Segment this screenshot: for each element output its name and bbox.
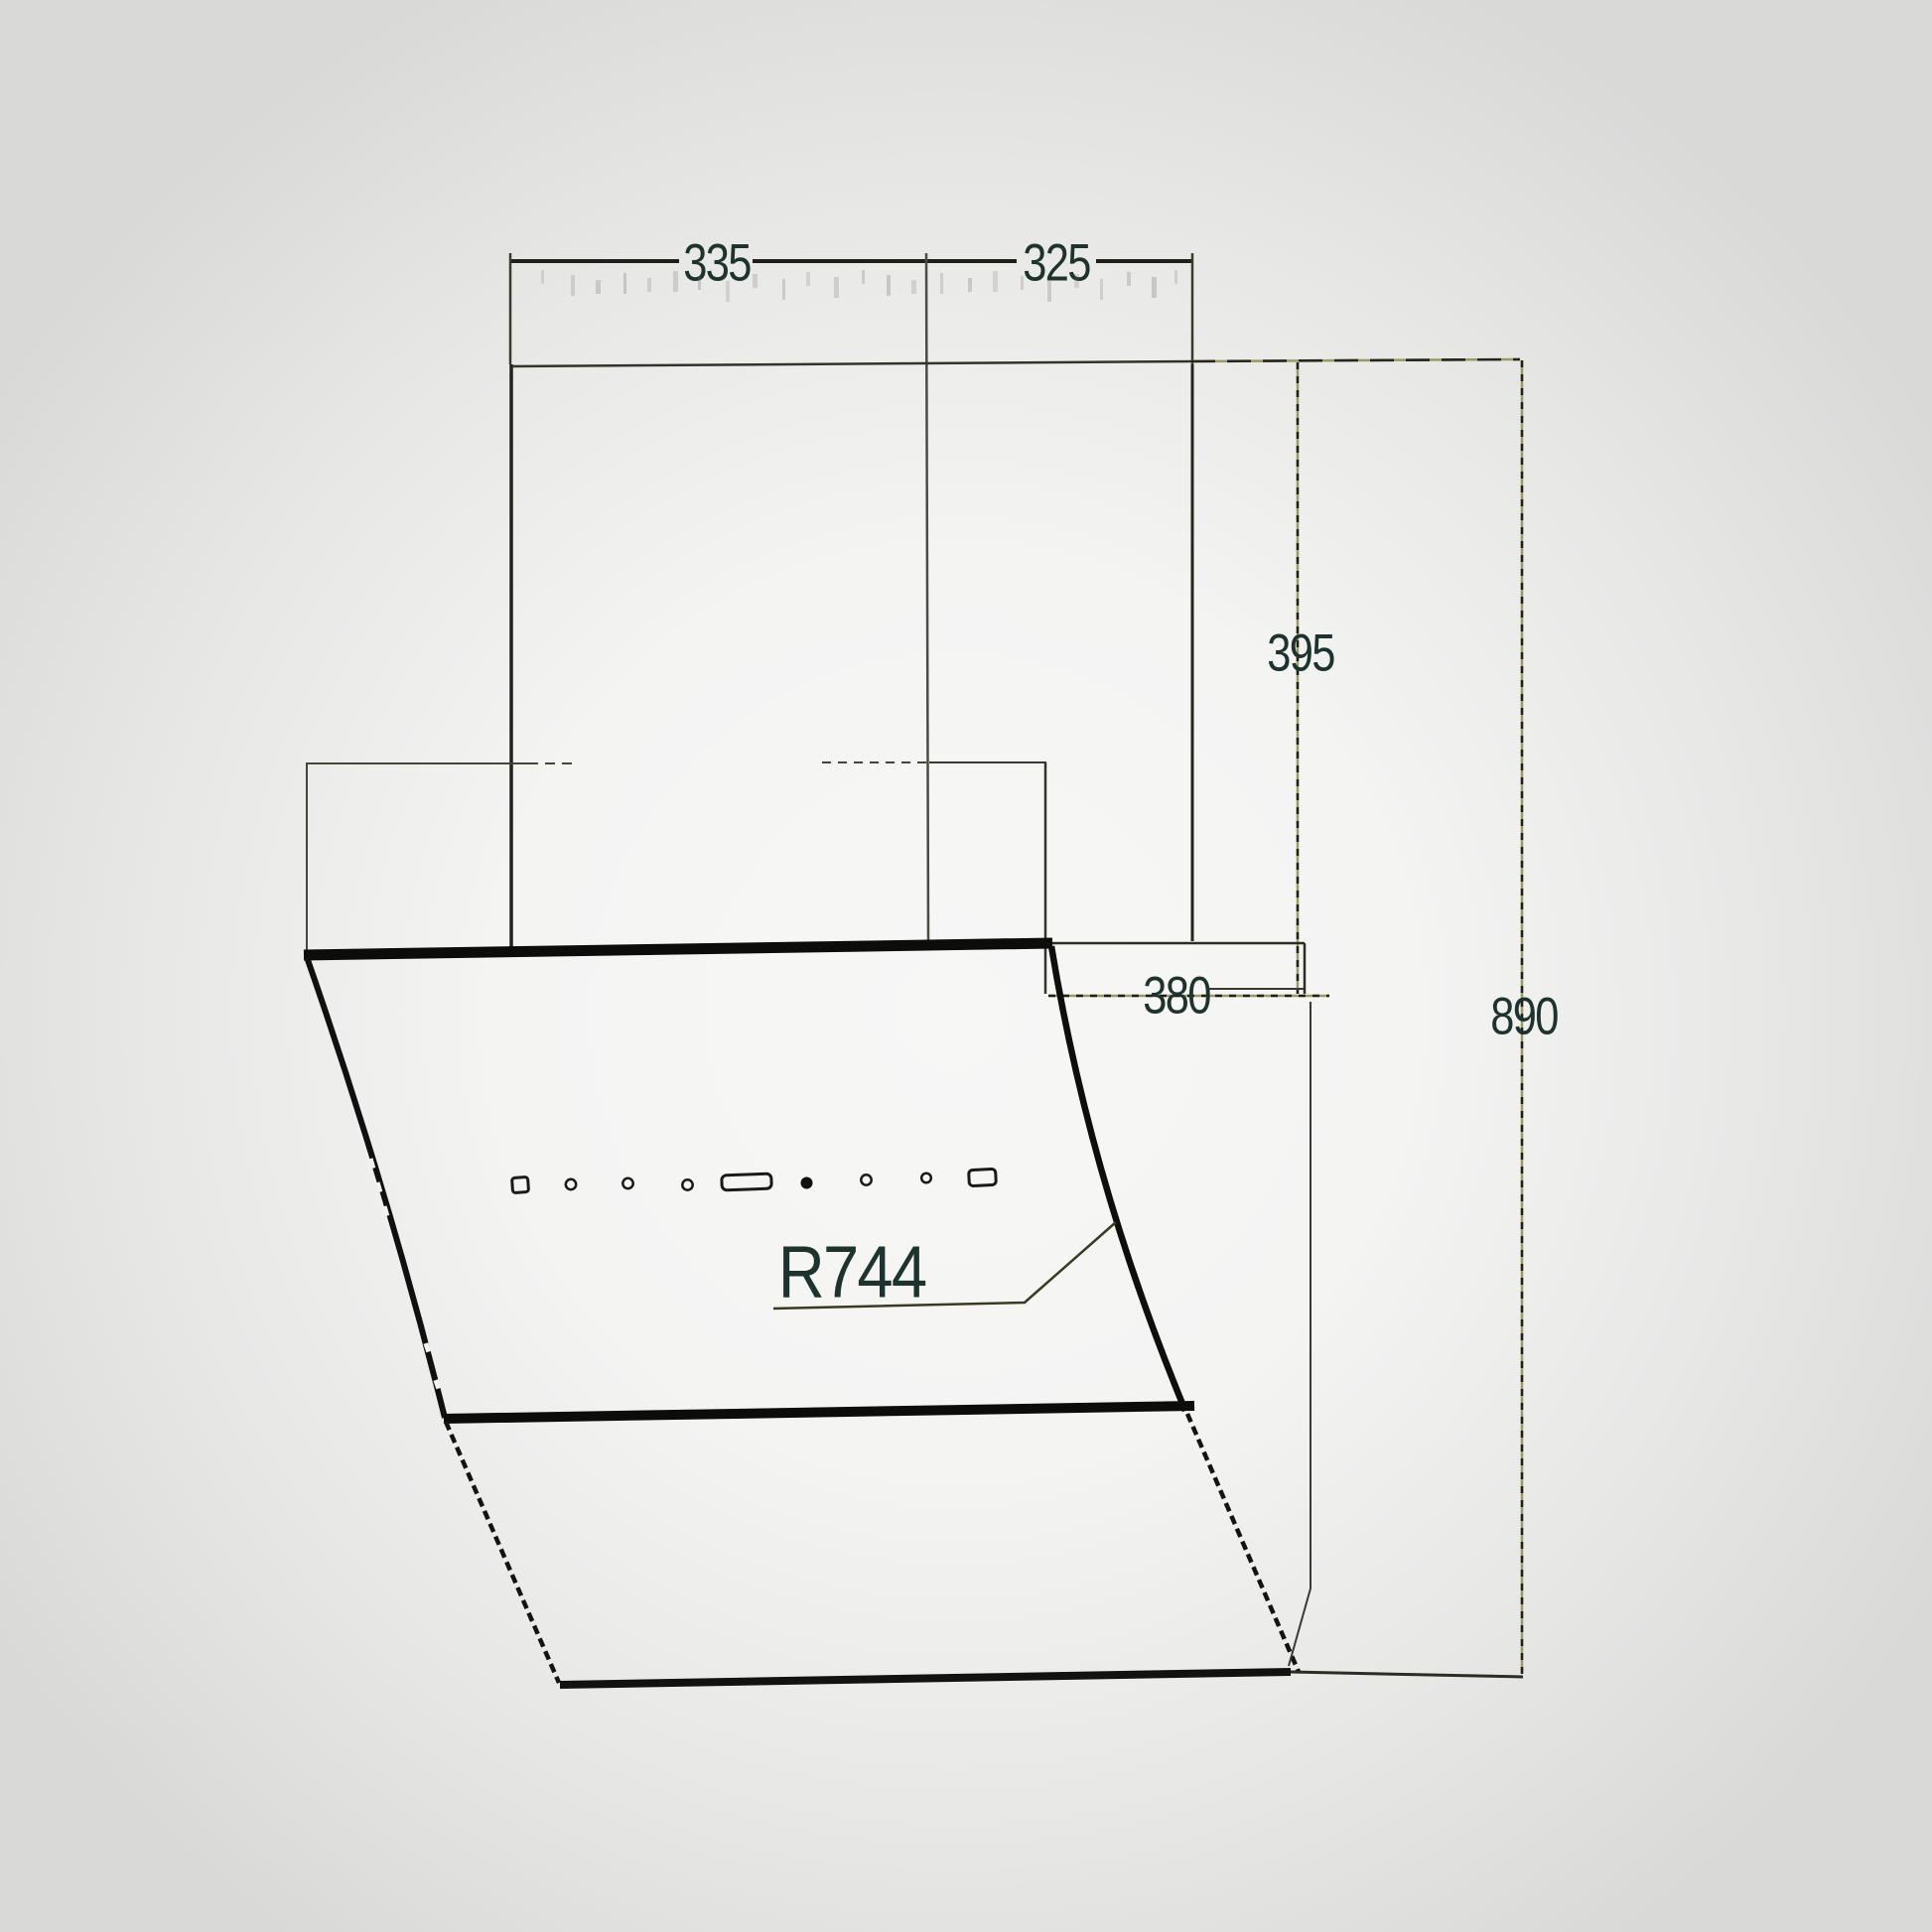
svg-text:380: 380	[1143, 966, 1210, 1025]
svg-text:R744: R744	[778, 1231, 926, 1313]
svg-text:395: 395	[1267, 623, 1334, 682]
svg-text:325: 325	[1023, 233, 1090, 292]
svg-text:335: 335	[683, 233, 751, 292]
svg-text:890: 890	[1490, 987, 1558, 1045]
